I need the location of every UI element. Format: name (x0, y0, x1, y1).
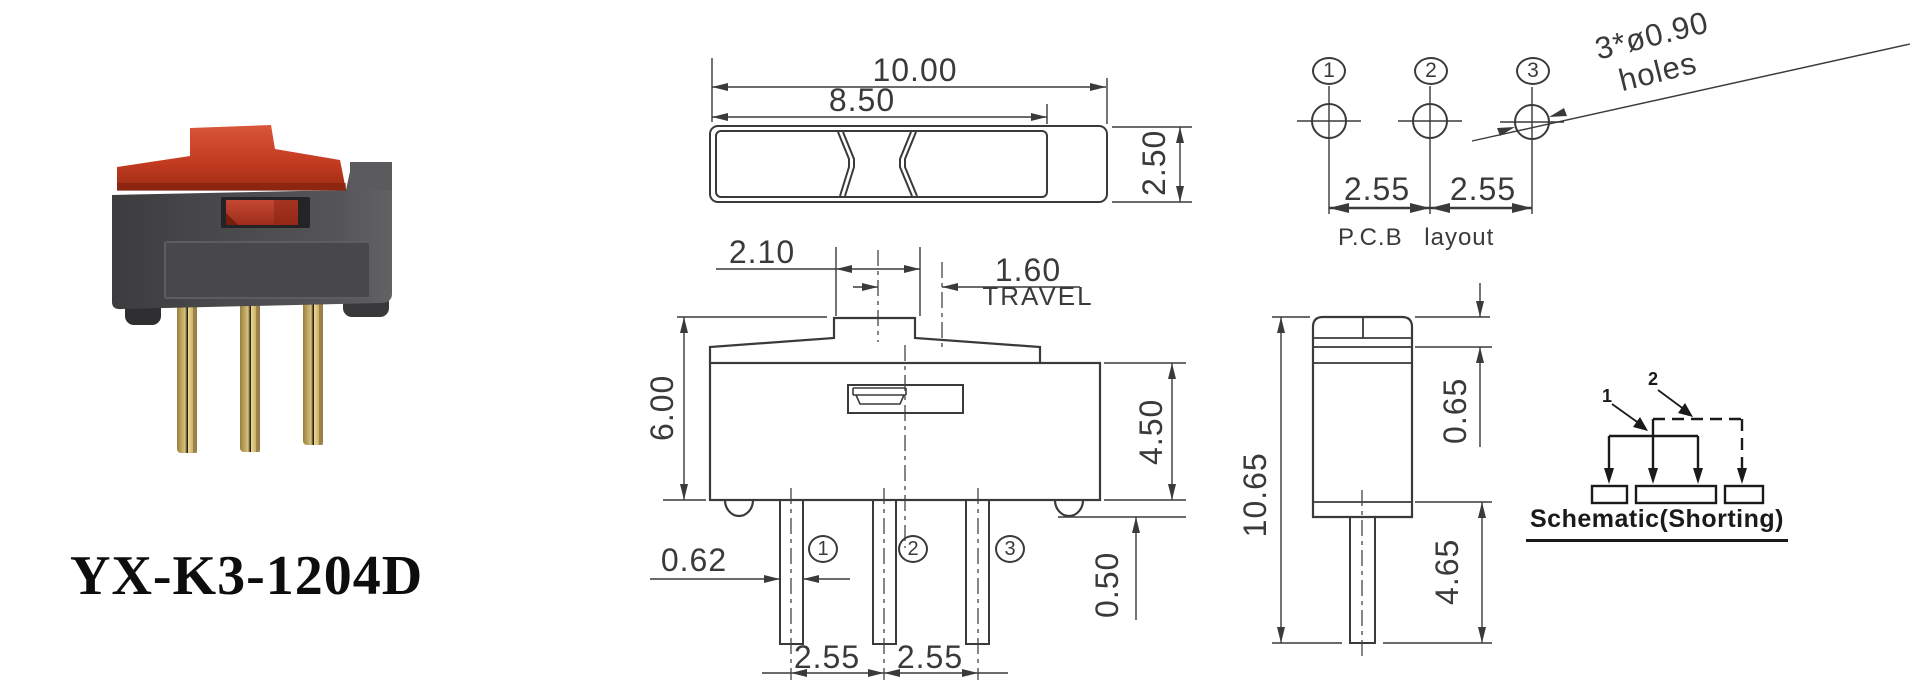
pcb-pin-1-badge: 1 (1312, 57, 1346, 85)
schematic-pin-1-label: 1 (1597, 386, 1617, 407)
top-view-height-dim: 2.50 (1138, 128, 1172, 198)
front-view-pin-1-badge: 1 (808, 535, 838, 563)
side-view-total-height-dim: 10.65 (1239, 445, 1273, 545)
datasheet-page: 10.00 8.50 2.50 2.10 1.60 TRAVEL 6.00 4.… (0, 0, 1920, 700)
schematic-arrowheads (1604, 403, 1747, 484)
pcb-layout-caption: P.C.B layout (1338, 224, 1494, 252)
front-view-body-height-dim: 4.50 (1135, 397, 1169, 467)
schematic-pin-2-label: 2 (1643, 369, 1663, 390)
front-view-pin-width-dim: 0.62 (644, 544, 744, 578)
front-view-pitch-right-dim: 2.55 (880, 641, 980, 675)
dimension-lines (650, 58, 1492, 673)
front-view-travel-label: TRAVEL (963, 283, 1113, 310)
front-view-pitch-left-dim: 2.55 (777, 641, 877, 675)
pcb-pin-3-badge: 3 (1516, 57, 1550, 85)
front-view-pin-2-badge: 2 (898, 535, 928, 563)
pcb-pitch-right-dim: 2.55 (1433, 173, 1533, 207)
front-view-total-height-dim: 6.00 (646, 373, 680, 443)
pcb-pitch-left-dim: 2.55 (1327, 173, 1427, 207)
side-view-cap-height-dim: 0.65 (1439, 376, 1473, 446)
side-view-pin-length-dim: 4.65 (1431, 537, 1465, 607)
schematic-drawing (1592, 390, 1763, 503)
front-view-standoff-dim: 0.50 (1091, 550, 1125, 620)
centerlines (791, 250, 1362, 680)
front-view-knob-width-dim: 2.10 (712, 236, 812, 270)
top-view-inner-width-dim: 8.50 (812, 84, 912, 118)
top-view-outline (710, 126, 1107, 202)
schematic-caption: Schematic(Shorting) (1526, 505, 1788, 542)
front-view-pin-3-badge: 3 (995, 535, 1025, 563)
product-model-name: YX-K3-1204D (70, 544, 423, 608)
pcb-pin-2-badge: 2 (1414, 57, 1448, 85)
